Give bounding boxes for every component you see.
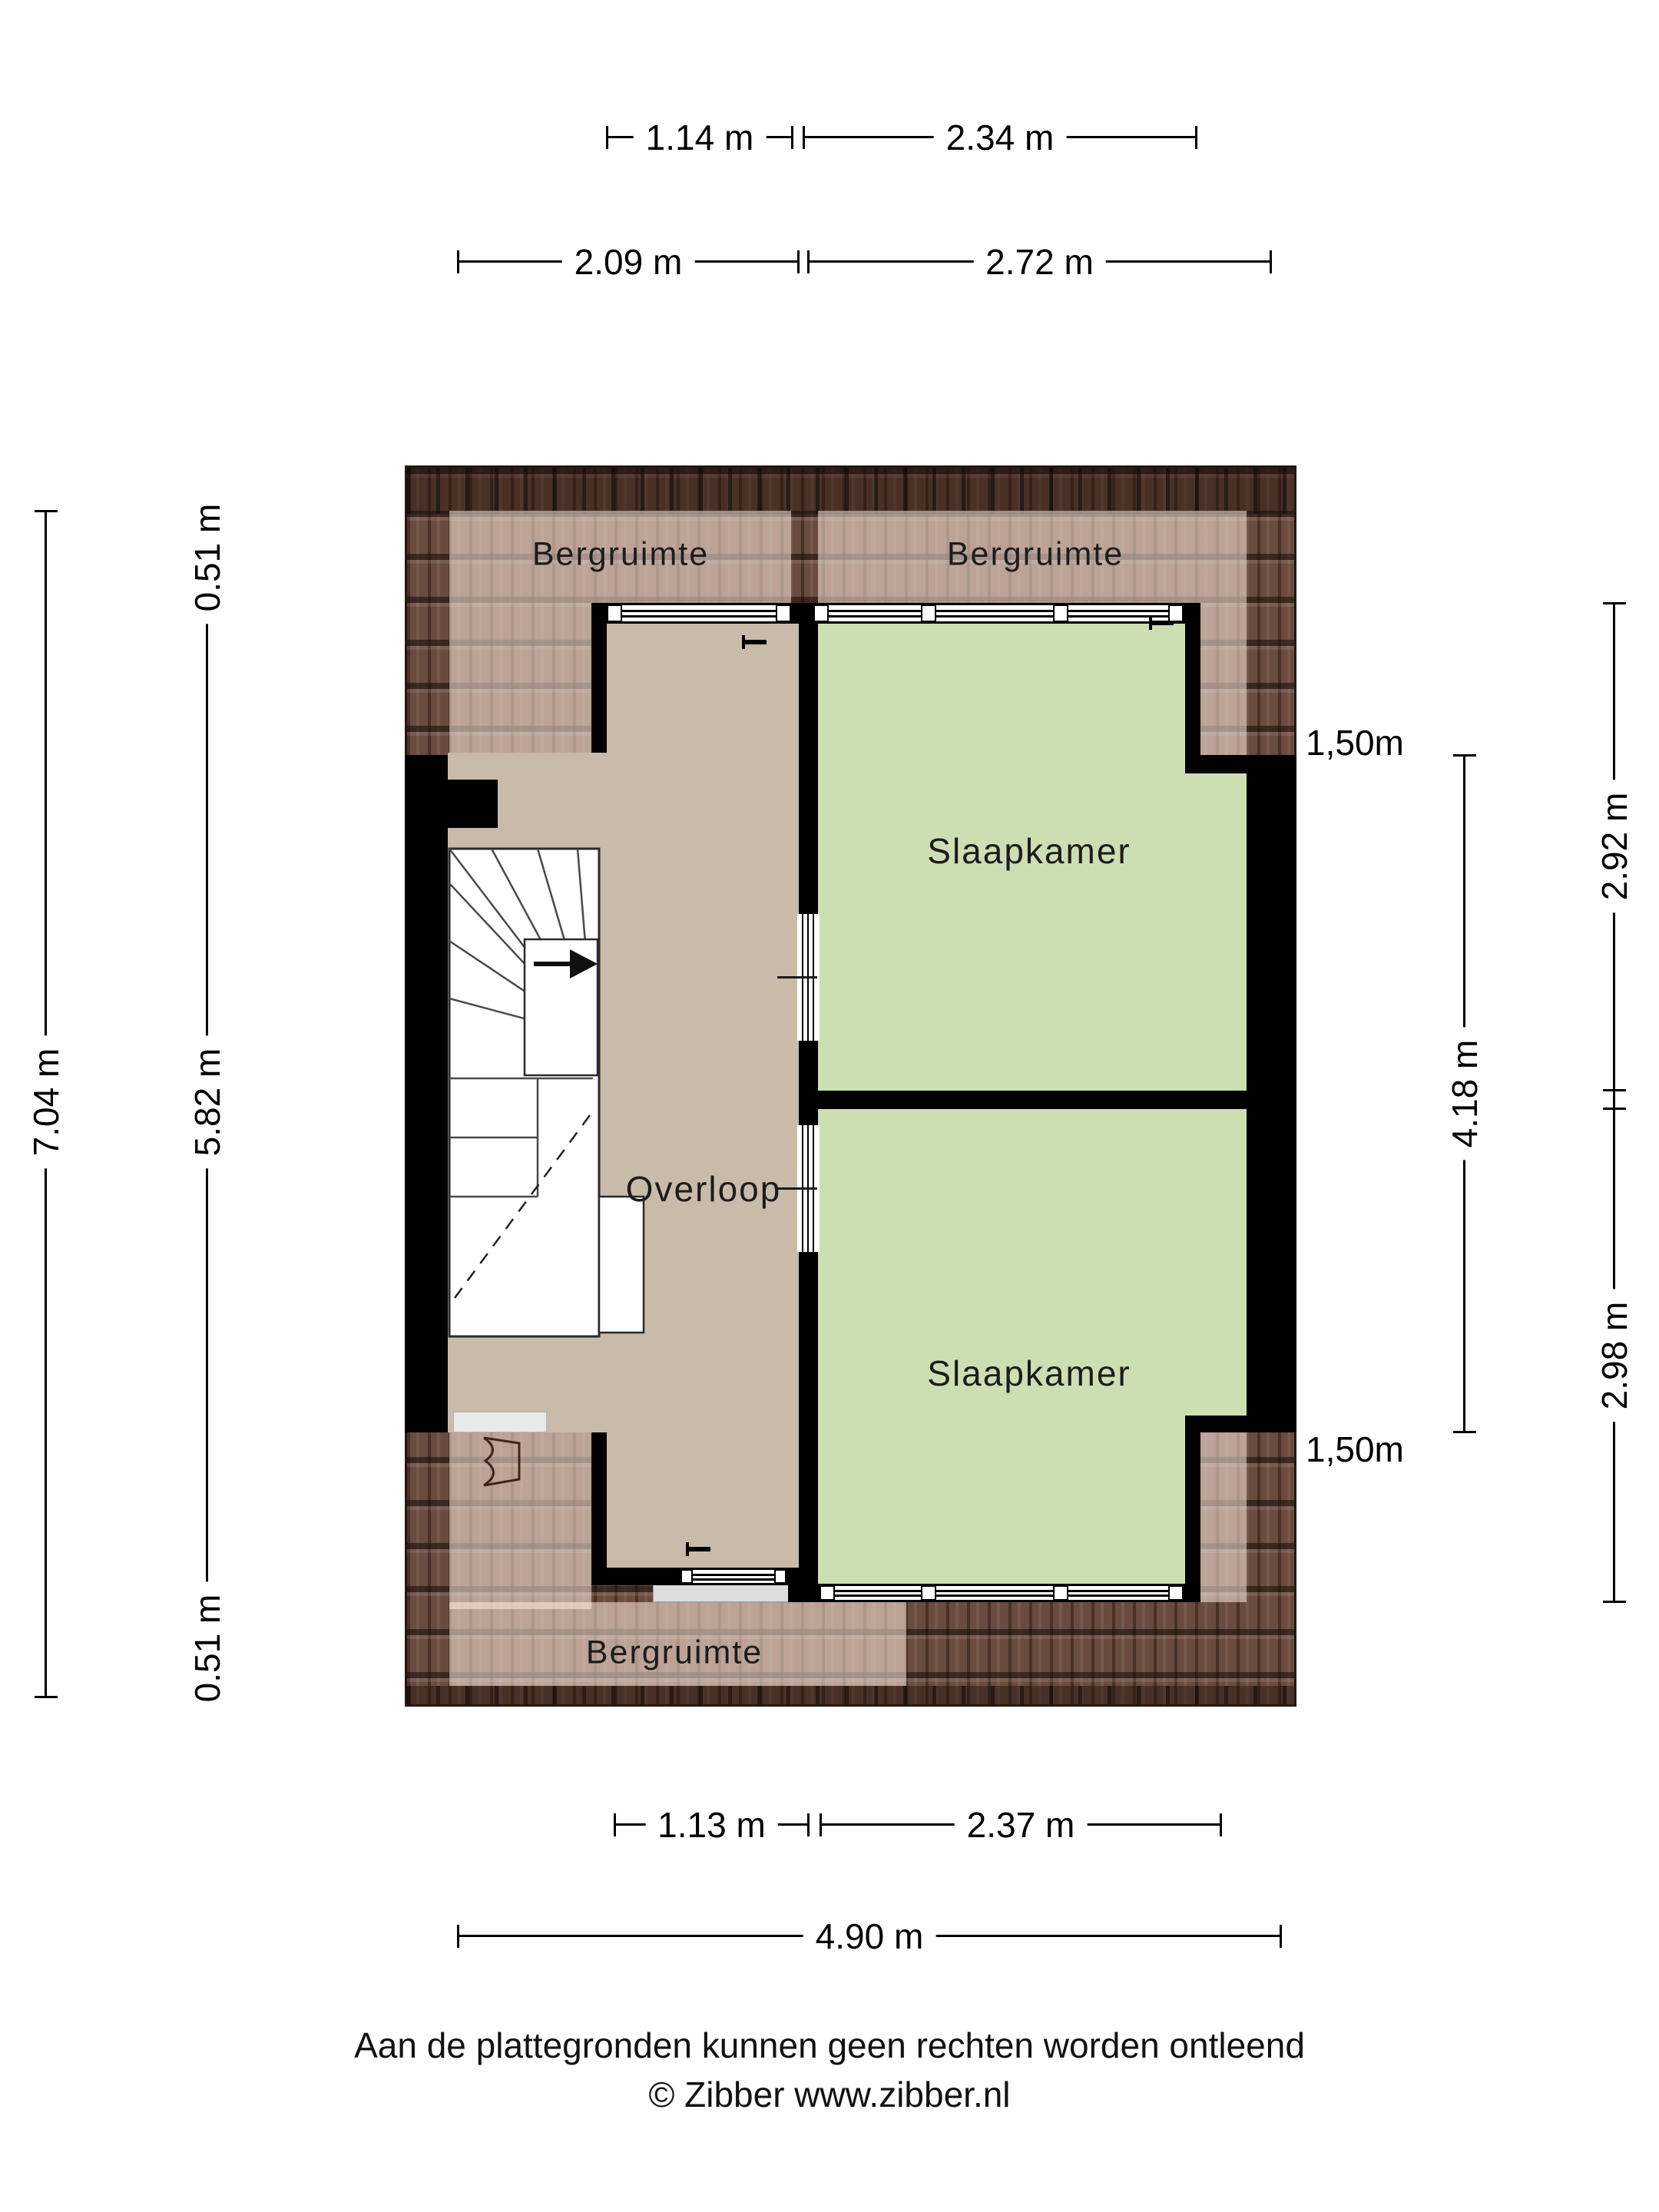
- dim-right-inner-span: 4.18 m: [1463, 755, 1465, 1432]
- room-label-storage-top-right: Bergruimte: [947, 536, 1124, 574]
- dim-top-right-width: 2.72 m: [808, 260, 1271, 263]
- dim-label: 4.18 m: [1442, 1028, 1487, 1161]
- dim-label: 0.51 m: [185, 492, 230, 624]
- dim-bottom-total-width: 4.90 m: [458, 1935, 1281, 1937]
- floorplan-canvas: 1.14 m 2.34 m 2.09 m 2.72 m 7.04 m 0.51 …: [0, 0, 1659, 2212]
- knee-height-label-bottom: 1,50m: [1306, 1429, 1404, 1470]
- dim-label: 1.14 m: [634, 115, 767, 160]
- room-label-storage-bottom: Bergruimte: [586, 1634, 763, 1672]
- stairs-drawing: [405, 465, 1296, 1707]
- dim-right-room-heights: 2.92 m 2.98 m: [1613, 603, 1615, 1602]
- dim-label: 0.51 m: [185, 1582, 230, 1715]
- dim-bottom-bedroom-width: 2.37 m: [820, 1823, 1221, 1826]
- dim-left-total-height: 7.04 m: [45, 511, 47, 1697]
- stair-landing: [599, 1197, 644, 1333]
- disclaimer-text: Aan de plattegronden kunnen geen rechten…: [0, 2025, 1659, 2066]
- stair-enclosure: [449, 849, 599, 1336]
- dim-label: 2.09 m: [562, 240, 695, 284]
- dim-label: 5.82 m: [185, 1036, 230, 1169]
- dim-top-overloop-width: 1.14 m: [607, 136, 793, 138]
- dim-label: 2.34 m: [934, 115, 1067, 160]
- dim-top-bedroom-width: 2.34 m: [803, 136, 1197, 138]
- dim-label: 2.92 m: [1592, 780, 1637, 913]
- dim-top-left-width: 2.09 m: [458, 260, 799, 263]
- copyright-text: © Zibber www.zibber.nl: [0, 2074, 1659, 2115]
- dim-label: 2.98 m: [1592, 1290, 1637, 1422]
- dim-label: 2.72 m: [973, 240, 1106, 284]
- room-label-storage-top-left: Bergruimte: [532, 536, 709, 574]
- room-label-overloop: Overloop: [626, 1168, 782, 1210]
- dim-label: 7.04 m: [24, 1036, 68, 1169]
- dim-label: 2.37 m: [955, 1803, 1088, 1847]
- room-label-bedroom-top: Slaapkamer: [927, 830, 1131, 872]
- dim-label: 4.90 m: [803, 1914, 936, 1959]
- dim-left-inner-heights: 0.51 m 5.82 m 0.51 m: [206, 511, 208, 1697]
- dormer-symbol: [484, 1438, 519, 1485]
- knee-height-label-top: 1,50m: [1306, 722, 1404, 763]
- dim-bottom-overloop-width: 1.13 m: [614, 1823, 809, 1826]
- room-label-bedroom-bottom: Slaapkamer: [927, 1353, 1131, 1394]
- dim-label: 1.13 m: [645, 1803, 778, 1847]
